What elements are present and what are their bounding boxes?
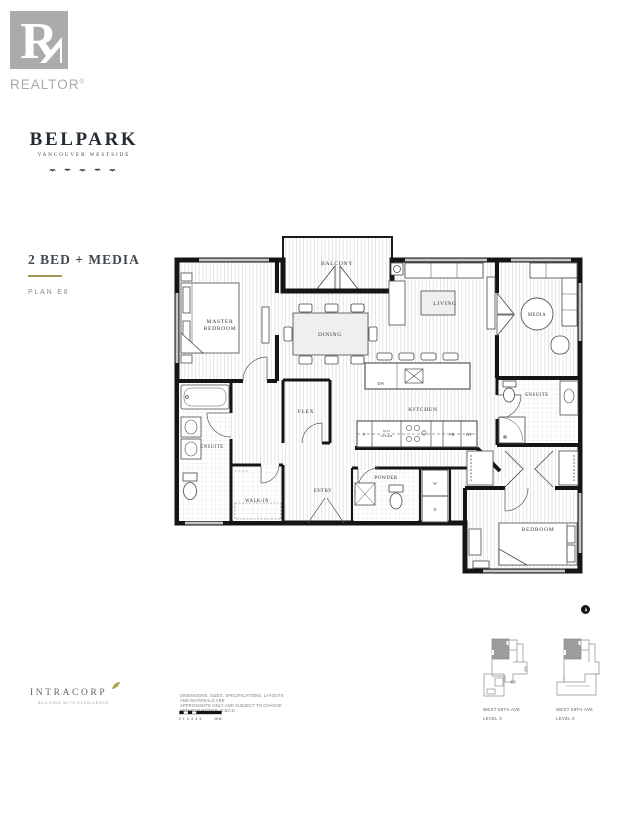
- kitchen-counter-icon: [357, 421, 477, 447]
- room-label-media: MEDIA: [528, 313, 546, 318]
- plan-code: PLAN E8: [28, 289, 140, 296]
- walkin-floor: [233, 465, 283, 521]
- room-label-balcony: BALCONY: [321, 261, 353, 267]
- realtor-r-block-icon: R: [10, 11, 68, 69]
- gold-rule: [28, 275, 62, 277]
- realtor-logo: R REALTOR®: [10, 11, 90, 92]
- room-label-kitchen: KITCHEN: [408, 407, 437, 413]
- scale-tick-5: 5: [200, 717, 202, 721]
- label-dishwasher: DW: [377, 381, 384, 386]
- scale-tick-0: 0: [179, 717, 181, 721]
- keyplan2-street: WEST 59TH AVE: [556, 707, 593, 712]
- developer-logo: INTRACORP BUILDING WITH EXCELLENCE: [30, 688, 109, 705]
- developer-tagline: BUILDING WITH EXCELLENCE: [38, 701, 109, 705]
- scale-bar: 0 1 2 3 4 5 10 M: [179, 710, 231, 729]
- room-label-flex: FLEX: [298, 409, 315, 415]
- label-wall-oven-2: STEAM: [381, 434, 393, 438]
- scale-end-label: 10 M: [214, 717, 222, 721]
- scale-tick-3: 3: [191, 717, 193, 721]
- project-tagline: VANCOUVER WESTSIDE: [26, 153, 142, 158]
- label-fridge: FR: [449, 432, 454, 437]
- room-label-master-1: MASTER: [207, 319, 234, 325]
- plan-header: 2 BED + MEDIA PLAN E8: [28, 252, 140, 296]
- keyplan1-street: WEST 59TH AVE: [483, 707, 520, 712]
- keyplan2-level: LEVEL 6: [556, 716, 575, 721]
- keyplan-level-3: [483, 638, 533, 707]
- developer-name: INTRACORP: [30, 688, 109, 698]
- scale-tick-1: 1: [183, 717, 185, 721]
- washer-dryer-icon: [422, 470, 448, 522]
- room-label-walkin: WALK-IN: [245, 499, 269, 504]
- label-dryer: D: [433, 507, 436, 512]
- room-label-dining: DINING: [318, 332, 342, 338]
- scale-tick-2: 2: [187, 717, 189, 721]
- room-label-entry: ENTRY: [314, 489, 332, 494]
- keyplan1-level: LEVEL 3: [483, 716, 502, 721]
- leaf-icon: [111, 681, 121, 693]
- label-wall-oven-1: W/O: [383, 429, 390, 433]
- realtor-wordmark: REALTOR®: [10, 77, 90, 92]
- plan-title: 2 BED + MEDIA: [28, 252, 140, 268]
- developer-wordmark: INTRACORP: [30, 688, 107, 698]
- room-label-living: LIVING: [433, 301, 456, 307]
- room-label-bedroom: BEDROOM: [522, 527, 555, 533]
- project-name: BELPARK: [26, 129, 142, 151]
- keyplan-level-6: [556, 638, 604, 705]
- floorplan-drawing: BALCONY MASTER BEDROOM DINING LIVING MED…: [165, 233, 605, 600]
- scale-tick-4: 4: [195, 717, 197, 721]
- room-label-ensuite-left: ENSUITE: [200, 445, 223, 450]
- room-label-powder: POWDER: [374, 476, 398, 481]
- registered-mark: ®: [80, 80, 85, 86]
- project-logo: BELPARK VANCOUVER WESTSIDE: [26, 129, 142, 179]
- north-indicator-icon: [581, 605, 590, 614]
- floorplan-sheet: R REALTOR® BELPARK VANCOUVER WESTSIDE 2 …: [0, 0, 640, 829]
- room-label-ensuite-right: ENSUITE: [525, 393, 548, 398]
- realtor-text: REALTOR: [10, 77, 80, 92]
- label-wine-fridge: WF: [466, 432, 473, 437]
- label-washer: W: [433, 481, 437, 486]
- room-label-master-2: BEDROOM: [204, 326, 237, 332]
- bird-icons: [26, 161, 142, 179]
